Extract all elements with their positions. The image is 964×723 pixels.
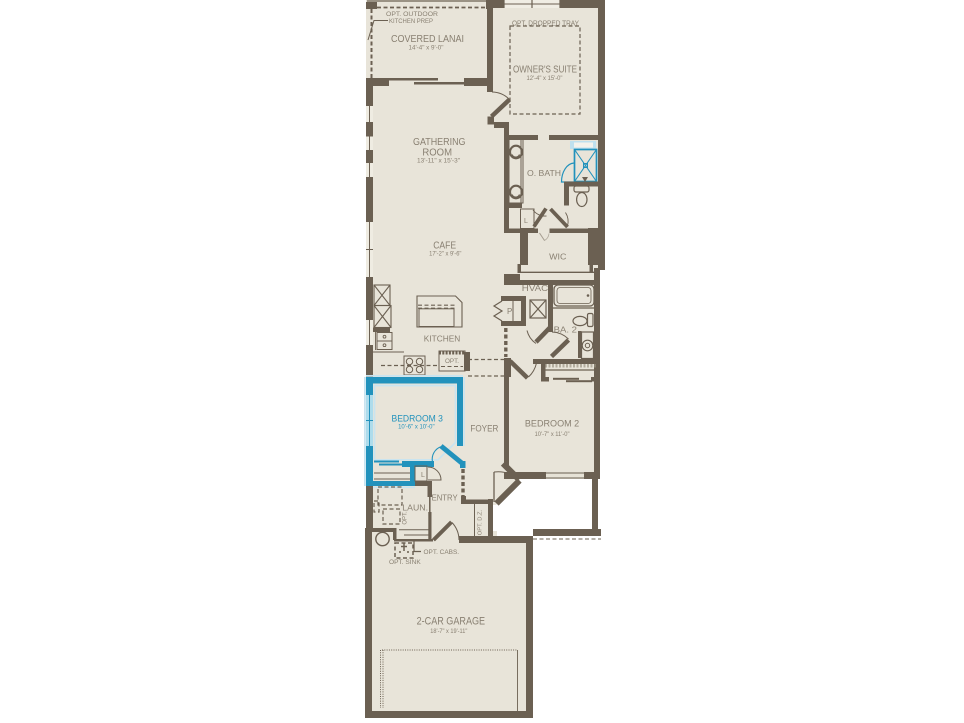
svg-text:LAUN.: LAUN. [402,504,428,513]
svg-text:P: P [507,307,512,316]
svg-text:CAFE: CAFE [433,241,456,252]
svg-text:14'-4" x 9'-0": 14'-4" x 9'-0" [409,46,444,52]
svg-text:KITCHEN PREP: KITCHEN PREP [389,18,433,25]
svg-text:12'-4" x 15'-0": 12'-4" x 15'-0" [527,76,563,82]
svg-text:17'-2" x 9'-6": 17'-2" x 9'-6" [429,252,461,258]
svg-text:BEDROOM 2: BEDROOM 2 [525,419,579,429]
svg-text:OPT. SINK: OPT. SINK [389,559,421,566]
svg-text:OPT.: OPT. [403,511,409,525]
svg-text:HVAC: HVAC [522,284,549,293]
svg-text:KITCHEN: KITCHEN [424,335,461,344]
svg-text:10'-7" x 11'-0": 10'-7" x 11'-0" [535,432,570,438]
svg-text:L: L [524,218,528,225]
svg-text:OWNER'S SUITE: OWNER'S SUITE [513,65,577,76]
svg-text:18'-7" x 19'-11": 18'-7" x 19'-11" [430,629,467,635]
svg-text:OPT. CABS.: OPT. CABS. [424,549,460,556]
svg-text:10'-6" x 10'-0": 10'-6" x 10'-0" [398,425,435,431]
svg-text:WIC: WIC [549,253,567,262]
svg-text:ROOM: ROOM [422,148,452,159]
svg-text:O. BATH: O. BATH [527,169,561,178]
svg-text:GATHERING: GATHERING [413,137,466,148]
svg-text:COVERED LANAI: COVERED LANAI [391,34,464,45]
svg-text:2-CAR GARAGE: 2-CAR GARAGE [417,616,486,628]
svg-text:L: L [421,472,425,479]
svg-text:OPT. OUTDOOR: OPT. OUTDOOR [386,11,438,18]
svg-text:FOYER: FOYER [470,424,498,434]
svg-text:OPT. D.Z.: OPT. D.Z. [478,509,484,535]
svg-text:OPT. DROPPED TRAY: OPT. DROPPED TRAY [512,21,579,28]
svg-text:OPT.: OPT. [445,359,459,365]
svg-text:ENTRY: ENTRY [432,494,459,503]
svg-text:BEDROOM 3: BEDROOM 3 [392,414,443,424]
svg-text:13'-11" x 15'-3": 13'-11" x 15'-3" [417,159,460,165]
